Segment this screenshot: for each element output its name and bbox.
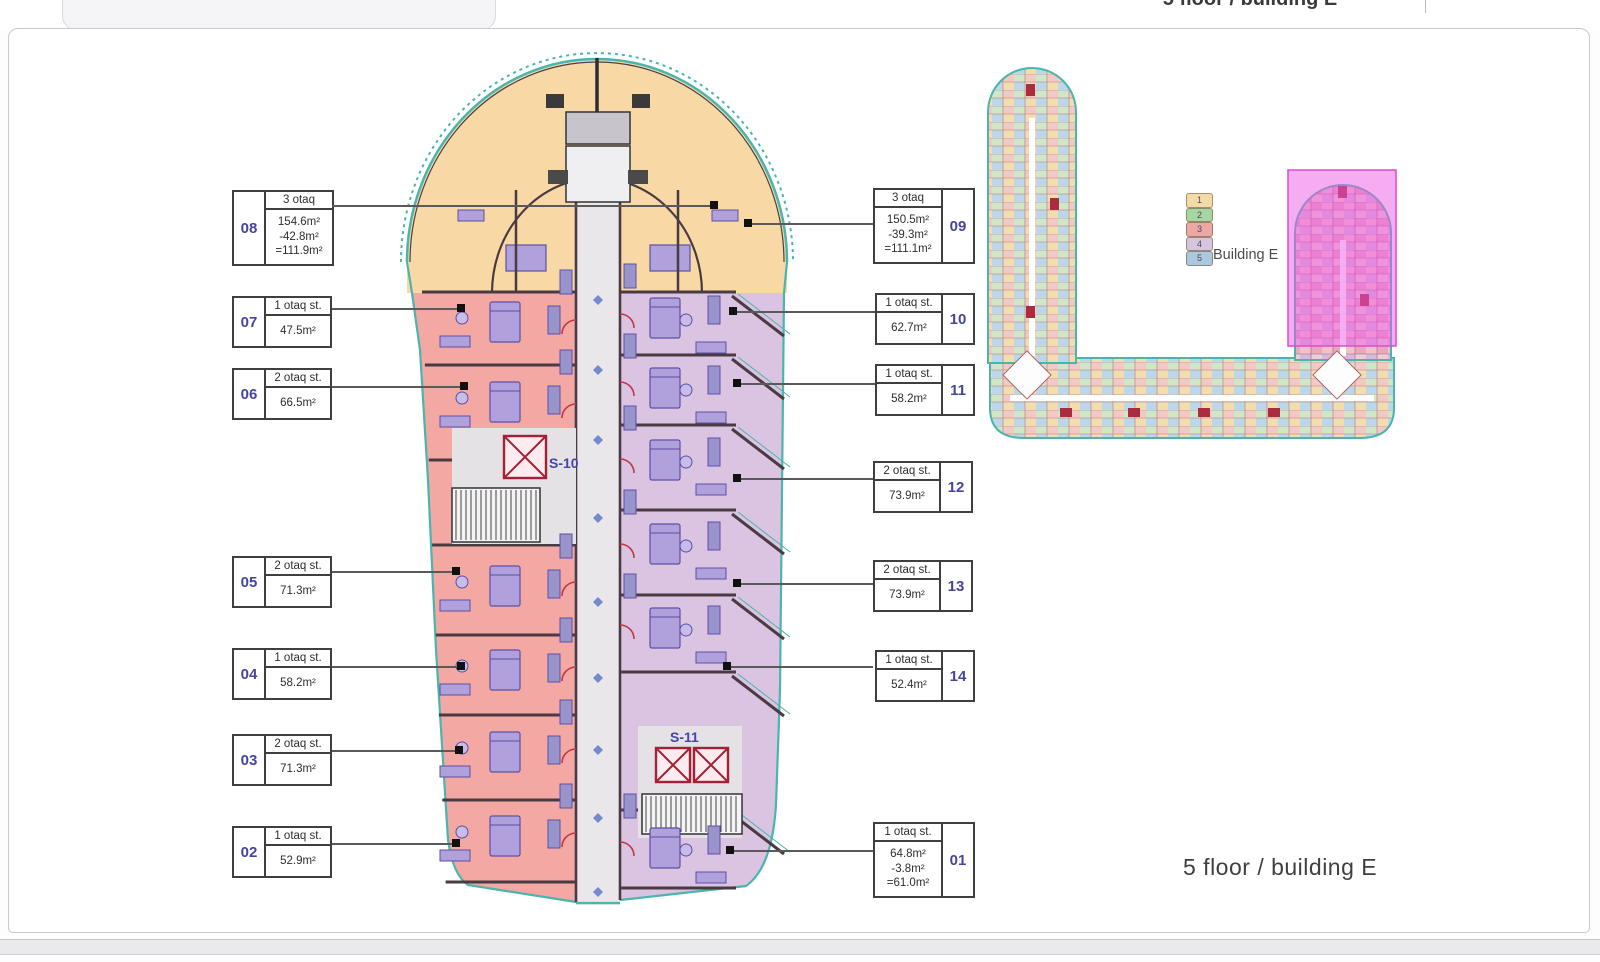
unit-label-03: 03 2 otaq st. 71.3m² xyxy=(232,734,332,786)
tab-bar: 5 floor / building E xyxy=(0,0,1600,30)
unit-dot xyxy=(455,746,463,754)
legend-swatch-1: 1 xyxy=(1186,193,1213,208)
unit-dot xyxy=(457,304,465,312)
leader-line xyxy=(332,205,713,207)
unit-type: 1 otaq st. xyxy=(266,298,330,316)
unit-number: 03 xyxy=(234,736,266,784)
legend-swatch-4: 4 xyxy=(1186,237,1213,252)
stair-core-s11: S-11 xyxy=(638,726,742,838)
unit-areas: 58.2m² xyxy=(266,668,330,698)
bottom-panel-edge xyxy=(0,939,1600,955)
unit-label-11: 1 otaq st. 58.2m² 11 xyxy=(875,364,975,416)
unit-type: 2 otaq st. xyxy=(266,370,330,388)
unit-areas: 52.9m² xyxy=(266,846,330,876)
unit-number: 04 xyxy=(234,650,266,698)
unit-number: 06 xyxy=(234,370,266,418)
unit-label-14: 1 otaq st. 52.4m² 14 xyxy=(875,650,975,702)
unit-label-13: 2 otaq st. 73.9m² 13 xyxy=(873,560,973,612)
unit-type: 2 otaq st. xyxy=(266,558,330,576)
tab-separator xyxy=(1425,0,1426,13)
stair-label-s10: S-10 xyxy=(549,455,579,471)
unit-areas: 71.3m² xyxy=(266,576,330,606)
leader-line xyxy=(332,571,455,573)
unit-label-08: 08 3 otaq 154.6m²-42.8m²=111.9m² xyxy=(232,190,334,266)
legend-swatch-2: 2 xyxy=(1186,208,1213,223)
unit-label-12: 2 otaq st. 73.9m² 12 xyxy=(873,461,973,513)
unit-areas: 66.5m² xyxy=(266,388,330,418)
unit-type: 3 otaq xyxy=(875,190,941,208)
unit-number: 08 xyxy=(234,192,266,264)
unit-number: 10 xyxy=(941,295,973,343)
leader-line xyxy=(737,383,875,385)
unit-label-09: 3 otaq 150.5m²-39.3m²=111.1m² 09 xyxy=(873,188,975,264)
unit-number: 11 xyxy=(941,366,973,414)
leader-line xyxy=(332,386,463,388)
stair-core-s10: S-10 xyxy=(452,428,579,544)
floor-legend: 1 2 3 4 5 xyxy=(1186,193,1213,266)
leader-line xyxy=(730,850,873,852)
unit-number: 01 xyxy=(941,824,973,896)
leader-line xyxy=(747,223,873,225)
unit-type: 1 otaq st. xyxy=(877,366,941,384)
unit-areas: 71.3m² xyxy=(266,754,330,784)
unit-areas: 52.4m² xyxy=(877,670,941,700)
unit-areas: 62.7m² xyxy=(877,313,941,343)
unit-type: 1 otaq st. xyxy=(877,652,941,670)
floor-plan-viewer: 5 floor / building E xyxy=(0,0,1600,962)
unit-dot xyxy=(733,379,741,387)
legend-swatch-5: 5 xyxy=(1186,251,1213,266)
unit-areas: 47.5m² xyxy=(266,316,330,346)
unit-type: 1 otaq st. xyxy=(266,828,330,846)
building-e-highlight xyxy=(1288,170,1396,346)
unit-label-06: 06 2 otaq st. 66.5m² xyxy=(232,368,332,420)
unit-dot xyxy=(452,839,460,847)
unit-areas: 64.8m²-3.8m²=61.0m² xyxy=(875,842,941,896)
unit-dot xyxy=(452,567,460,575)
unit-areas: 150.5m²-39.3m²=111.1m² xyxy=(875,208,941,262)
unit-dot xyxy=(733,474,741,482)
page-title: 5 floor / building E xyxy=(1183,854,1377,881)
unit-areas: 154.6m²-42.8m²=111.9m² xyxy=(266,210,332,264)
unit-areas: 73.9m² xyxy=(875,580,939,610)
unit-dot xyxy=(733,579,741,587)
unit-dot xyxy=(744,219,752,227)
unit-number: 12 xyxy=(939,463,971,511)
unit-label-10: 1 otaq st. 62.7m² 10 xyxy=(875,293,975,345)
leader-line xyxy=(332,750,458,752)
leader-line xyxy=(737,583,873,585)
unit-dot xyxy=(726,846,734,854)
unit-type: 1 otaq st. xyxy=(875,824,941,842)
legend-swatch-3: 3 xyxy=(1186,222,1213,237)
tab-left[interactable] xyxy=(62,0,496,30)
unit-type: 2 otaq st. xyxy=(266,736,330,754)
unit-type: 2 otaq st. xyxy=(875,562,939,580)
unit-dot xyxy=(460,382,468,390)
leader-line xyxy=(733,311,875,313)
unit-dot xyxy=(457,662,465,670)
unit-label-04: 04 1 otaq st. 58.2m² xyxy=(232,648,332,700)
legend-building-label: Building E xyxy=(1213,247,1278,263)
unit-number: 02 xyxy=(234,828,266,876)
leader-line xyxy=(737,478,873,480)
unit-label-07: 07 1 otaq st. 47.5m² xyxy=(232,296,332,348)
leader-line xyxy=(332,308,460,310)
unit-type: 1 otaq st. xyxy=(877,295,941,313)
unit-number: 13 xyxy=(939,562,971,610)
leader-line xyxy=(332,843,455,845)
unit-type: 2 otaq st. xyxy=(875,463,939,481)
unit-dot xyxy=(710,201,718,209)
stair-label-s11: S-11 xyxy=(670,729,699,745)
leader-line xyxy=(332,666,460,668)
leader-line xyxy=(727,666,873,668)
unit-label-05: 05 2 otaq st. 71.3m² xyxy=(232,556,332,608)
tab-current[interactable]: 5 floor / building E xyxy=(1050,0,1450,12)
unit-areas: 58.2m² xyxy=(877,384,941,414)
unit-number: 07 xyxy=(234,298,266,346)
unit-number: 05 xyxy=(234,558,266,606)
unit-areas: 73.9m² xyxy=(875,481,939,511)
unit-label-01: 1 otaq st. 64.8m²-3.8m²=61.0m² 01 xyxy=(873,822,975,898)
unit-label-02: 02 1 otaq st. 52.9m² xyxy=(232,826,332,878)
unit-type: 3 otaq xyxy=(266,192,332,210)
unit-dot xyxy=(729,307,737,315)
unit-number: 14 xyxy=(941,652,973,700)
tab-title: 5 floor / building E xyxy=(1050,0,1450,11)
unit-dot xyxy=(723,662,731,670)
unit-type: 1 otaq st. xyxy=(266,650,330,668)
corridor xyxy=(576,158,620,905)
unit-number: 09 xyxy=(941,190,973,262)
